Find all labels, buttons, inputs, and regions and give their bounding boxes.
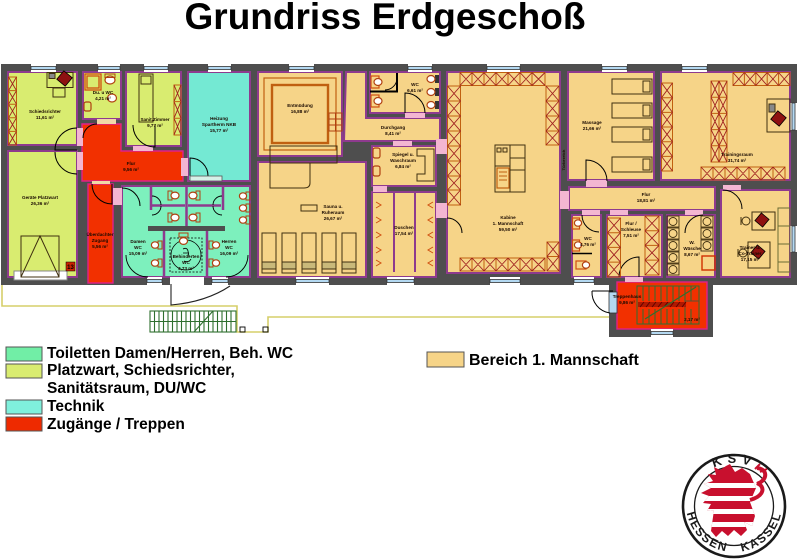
svg-text:17,54 m²: 17,54 m² [395,231,414,236]
svg-text:Schleuse: Schleuse [621,227,642,232]
svg-text:Kabine: Kabine [500,215,516,220]
svg-text:WC: WC [182,260,190,265]
svg-text:Zugang: Zugang [92,238,109,243]
svg-text:6,84 m²: 6,84 m² [395,164,411,169]
svg-text:1. Mannschaft: 1. Mannschaft [493,221,524,226]
svg-text:Heizung: Heizung [210,116,228,121]
svg-text:Wäsche: Wäsche [683,246,701,251]
svg-text:W.: W. [689,240,694,245]
svg-text:17,15 m²: 17,15 m² [741,257,760,262]
svg-text:59,50 m²: 59,50 m² [499,227,518,232]
svg-text:26,67 m²: 26,67 m² [324,216,343,221]
svg-text:Zugänge / Treppen: Zugänge / Treppen [47,416,185,433]
svg-text:Grundriss Erdgeschoß: Grundriss Erdgeschoß [185,0,586,37]
svg-text:2,17 m²: 2,17 m² [684,317,700,322]
svg-text:Toiletten Damen/Herren, Beh. W: Toiletten Damen/Herren, Beh. WC [47,345,293,362]
svg-text:Platzwart, Schiedsrichter,: Platzwart, Schiedsrichter, [47,362,235,379]
svg-text:Geräte Platzwart: Geräte Platzwart [22,195,58,200]
svg-text:Bereich 1. Mannschaft: Bereich 1. Mannschaft [469,352,640,369]
svg-text:31,74 m²: 31,74 m² [728,158,747,163]
svg-text:Trainingsraum: Trainingsraum [721,152,753,157]
svg-text:21,66 m²: 21,66 m² [583,126,602,131]
svg-text:Sanit.Zimmer: Sanit.Zimmer [140,117,169,122]
svg-text:Trainer u.: Trainer u. [740,245,761,250]
svg-text:4,73 m²: 4,73 m² [178,266,194,271]
svg-text:6,61 m²: 6,61 m² [407,88,423,93]
svg-text:5,56 m²: 5,56 m² [92,244,108,249]
svg-text:WC: WC [225,245,233,250]
svg-text:Du. u WC: Du. u WC [93,90,114,95]
svg-text:7,51 m²: 7,51 m² [623,233,639,238]
svg-text:15,09 m²: 15,09 m² [129,251,148,256]
svg-text:Massage: Massage [582,120,602,125]
svg-text:Sauna u.: Sauna u. [323,204,342,209]
svg-text:Treppenhaus: Treppenhaus [613,294,642,299]
svg-text:WC: WC [411,82,419,87]
svg-text:Ruheraum: Ruheraum [322,210,345,215]
svg-text:8,67 m²: 8,67 m² [684,252,700,257]
svg-text:26,36 m²: 26,36 m² [31,201,50,206]
svg-text:Flur: Flur [127,161,136,166]
svg-text:Türbereich: Türbereich [561,149,566,170]
svg-text:Sanitätsraum, DU/WC: Sanitätsraum, DU/WC [47,380,206,397]
svg-text:WC: WC [134,245,142,250]
svg-text:Spiegel u.: Spiegel u. [392,152,414,157]
svg-text:Schiedsrichter: Schiedsrichter [29,109,61,114]
svg-text:Damen: Damen [130,239,146,244]
svg-text:11,61 m²: 11,61 m² [36,115,55,120]
svg-text:15,77 m²: 15,77 m² [210,128,229,133]
svg-text:16,88 m²: 16,88 m² [291,109,310,114]
svg-text:WC: WC [584,236,592,241]
svg-text:13: 13 [67,265,74,271]
svg-text:16,09 m²: 16,09 m² [220,251,239,256]
svg-text:Überdachter: Überdachter [86,231,113,237]
svg-text:18,81 m²: 18,81 m² [637,198,656,203]
svg-text:8,41 m²: 8,41 m² [385,131,401,136]
svg-text:Duschen: Duschen [394,225,414,230]
svg-text:Flur: Flur [642,192,651,197]
svg-text:9,77 m²: 9,77 m² [147,123,163,128]
svg-text:Entmüdung: Entmüdung [287,103,313,108]
svg-text:4,76 m²: 4,76 m² [580,242,596,247]
svg-text:Durchgang: Durchgang [381,125,405,130]
svg-text:9,56 m²: 9,56 m² [123,167,139,172]
svg-text:Co-Trainer: Co-Trainer [739,251,762,256]
svg-text:Spartherm NKB: Spartherm NKB [202,122,237,127]
svg-text:Technik: Technik [47,398,105,415]
svg-text:9,86 m²: 9,86 m² [619,300,635,305]
svg-text:Behinderten: Behinderten [173,254,200,259]
svg-text:4,21 m²: 4,21 m² [95,96,111,101]
svg-text:Flur /: Flur / [625,221,637,226]
svg-text:Herren: Herren [222,239,237,244]
svg-text:Waschraum: Waschraum [390,158,416,163]
